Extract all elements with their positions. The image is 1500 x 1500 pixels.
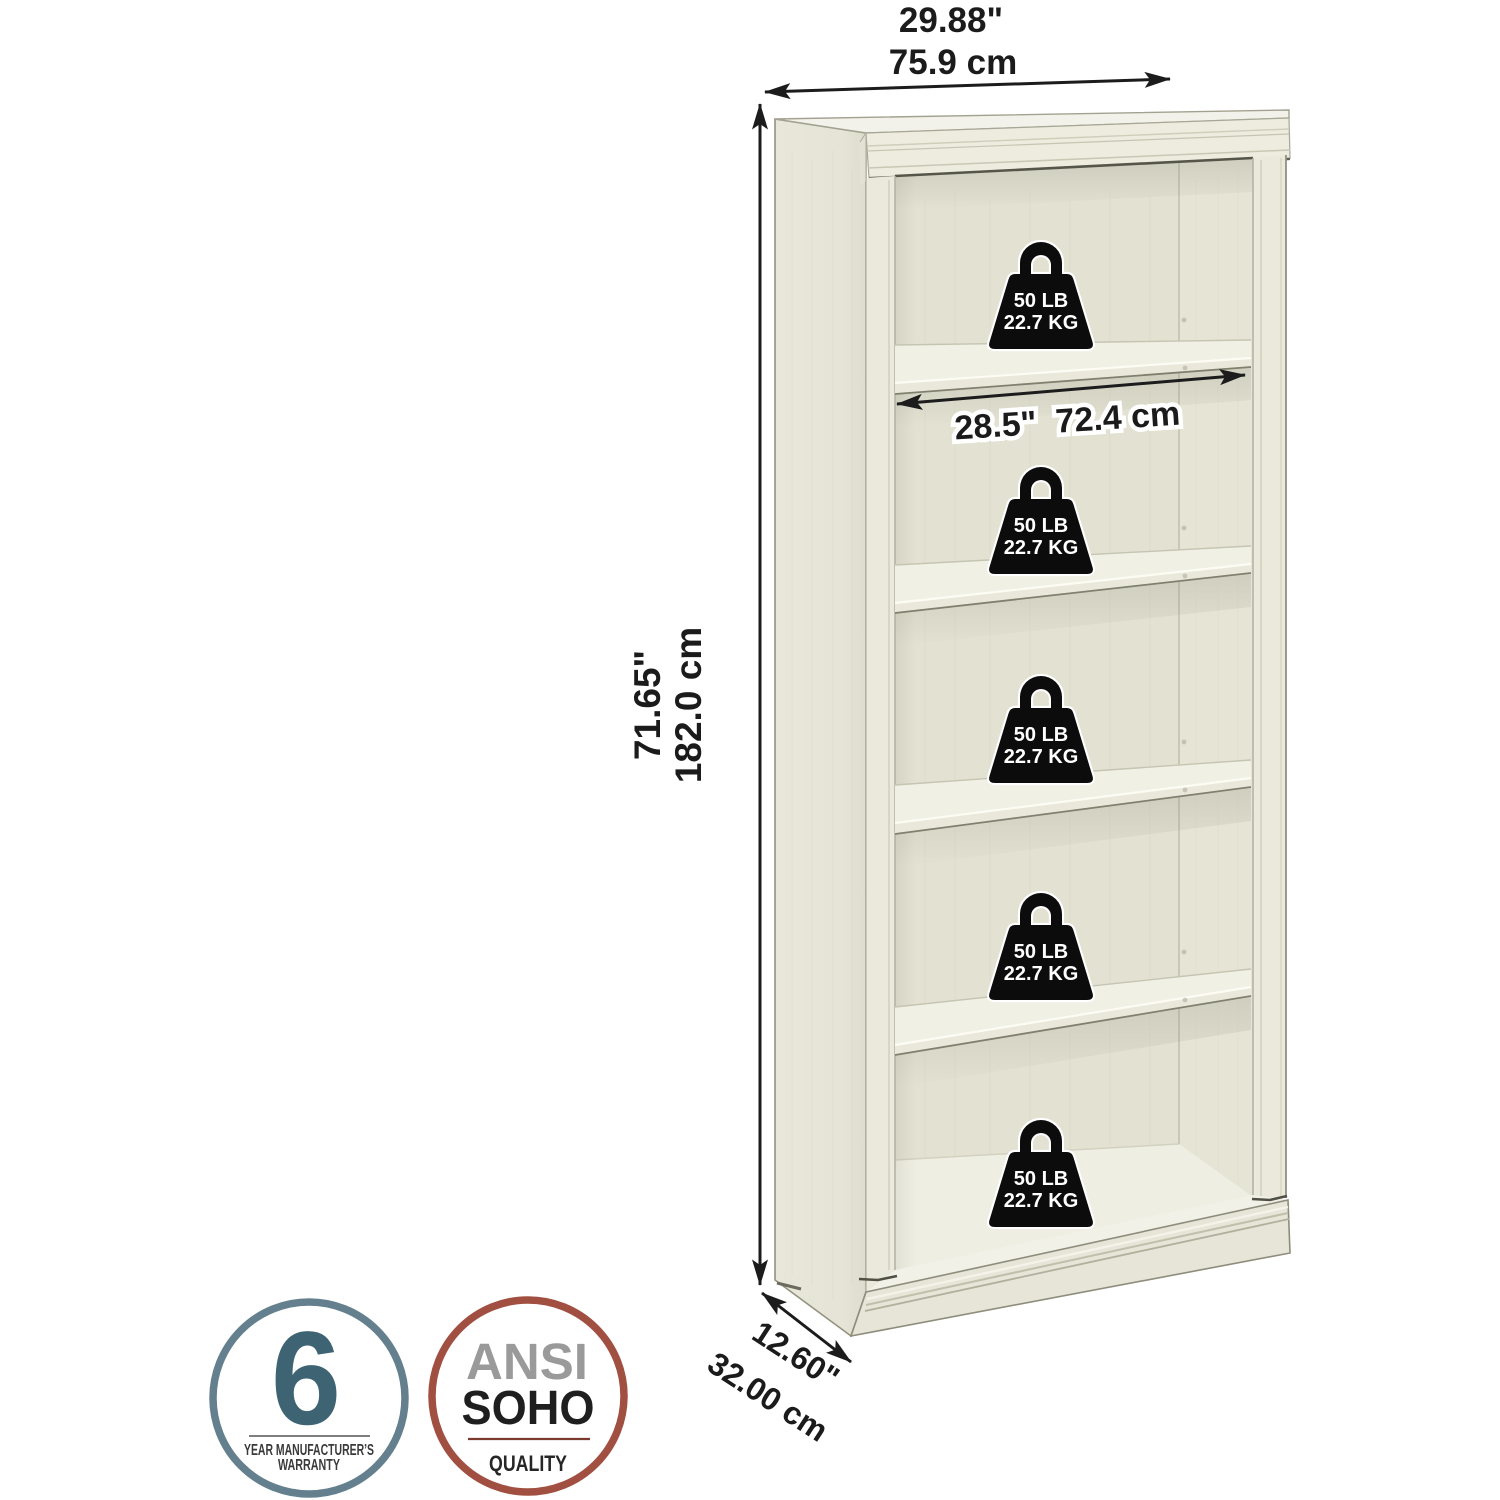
svg-text:29.88": 29.88" bbox=[899, 1, 1003, 40]
svg-text:SOHO: SOHO bbox=[462, 1382, 595, 1435]
svg-text:71.65": 71.65" bbox=[627, 650, 668, 760]
svg-text:WARRANTY: WARRANTY bbox=[278, 1457, 340, 1474]
svg-text:QUALITY: QUALITY bbox=[489, 1451, 567, 1476]
svg-text:6: 6 bbox=[271, 1305, 341, 1453]
svg-text:182.0 cm: 182.0 cm bbox=[668, 627, 709, 783]
svg-text:75.9 cm: 75.9 cm bbox=[889, 43, 1017, 82]
